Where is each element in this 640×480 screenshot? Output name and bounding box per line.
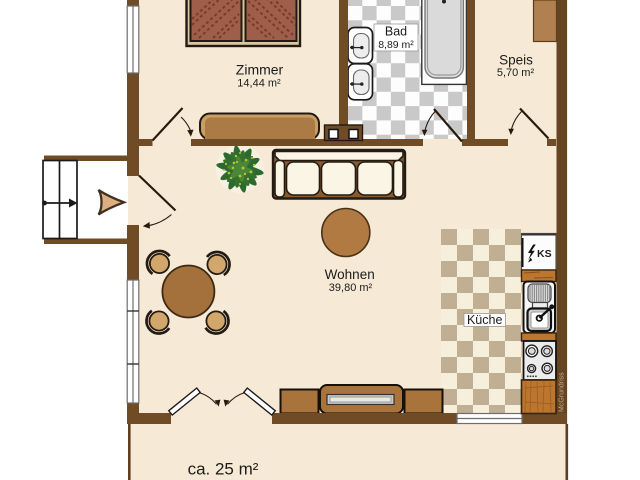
svg-text:Zimmer: Zimmer — [236, 62, 284, 78]
svg-text:8,89 m²: 8,89 m² — [378, 39, 414, 51]
svg-text:McGrundriss: McGrundriss — [559, 372, 566, 412]
svg-text:Küche: Küche — [467, 313, 502, 327]
svg-text:Speis: Speis — [499, 53, 533, 68]
svg-text:39,80 m²: 39,80 m² — [329, 282, 373, 294]
svg-text:ca. 25 m²: ca. 25 m² — [188, 460, 259, 479]
svg-text:Bad: Bad — [385, 25, 407, 39]
svg-text:14,44 m²: 14,44 m² — [237, 78, 281, 90]
svg-text:KS: KS — [537, 248, 552, 260]
svg-text:5,70 m²: 5,70 m² — [497, 67, 535, 79]
svg-text:Wohnen: Wohnen — [325, 267, 375, 282]
